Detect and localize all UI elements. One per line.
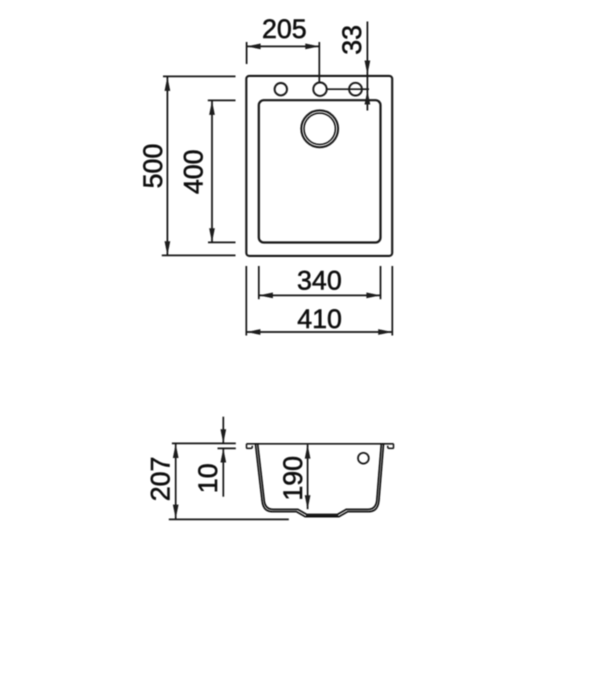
svg-text:10: 10 [193,463,223,493]
svg-text:500: 500 [138,144,168,189]
svg-text:33: 33 [337,25,367,55]
svg-text:207: 207 [146,457,176,502]
svg-text:400: 400 [178,149,208,194]
svg-text:410: 410 [297,304,342,334]
svg-text:190: 190 [278,456,308,501]
svg-text:340: 340 [297,265,342,295]
svg-text:205: 205 [262,14,307,44]
